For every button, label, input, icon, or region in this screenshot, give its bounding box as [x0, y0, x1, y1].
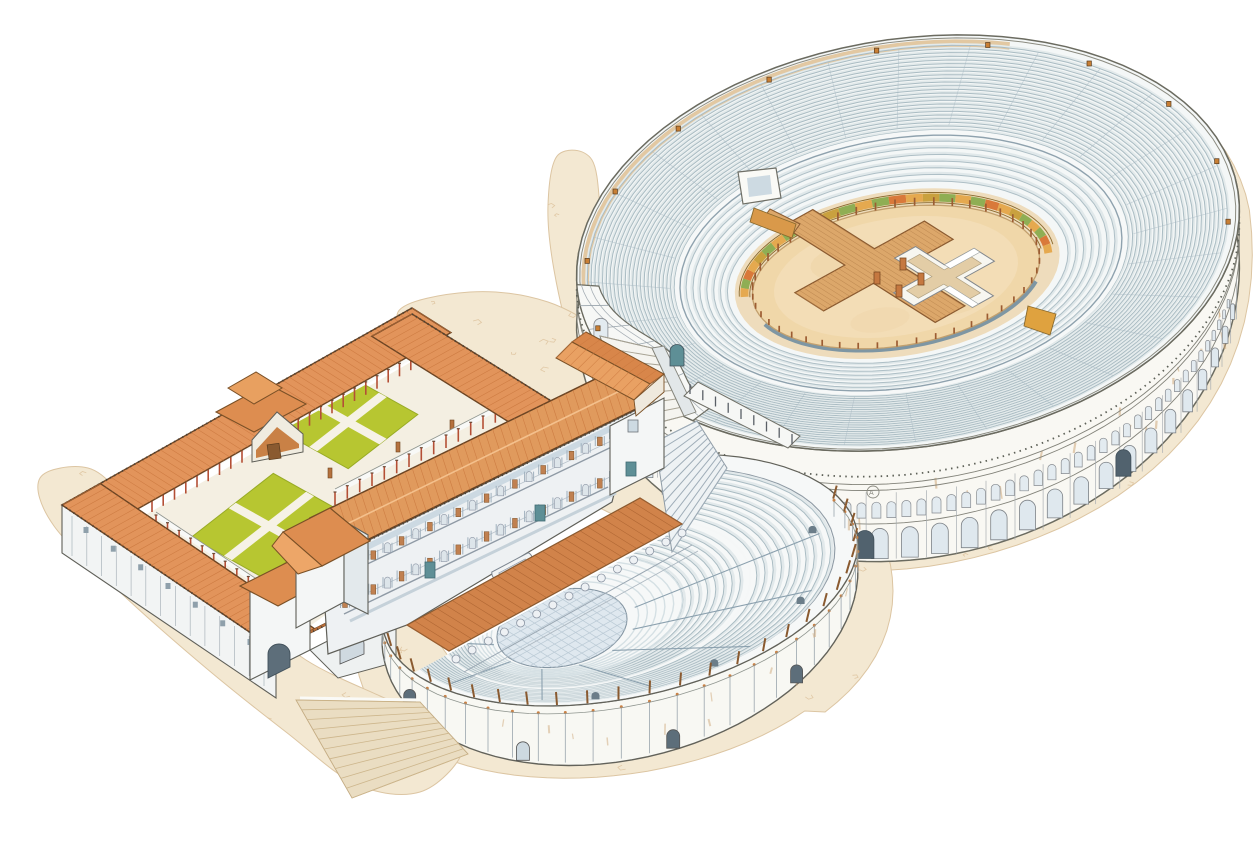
- svg-text:A: A: [869, 490, 874, 497]
